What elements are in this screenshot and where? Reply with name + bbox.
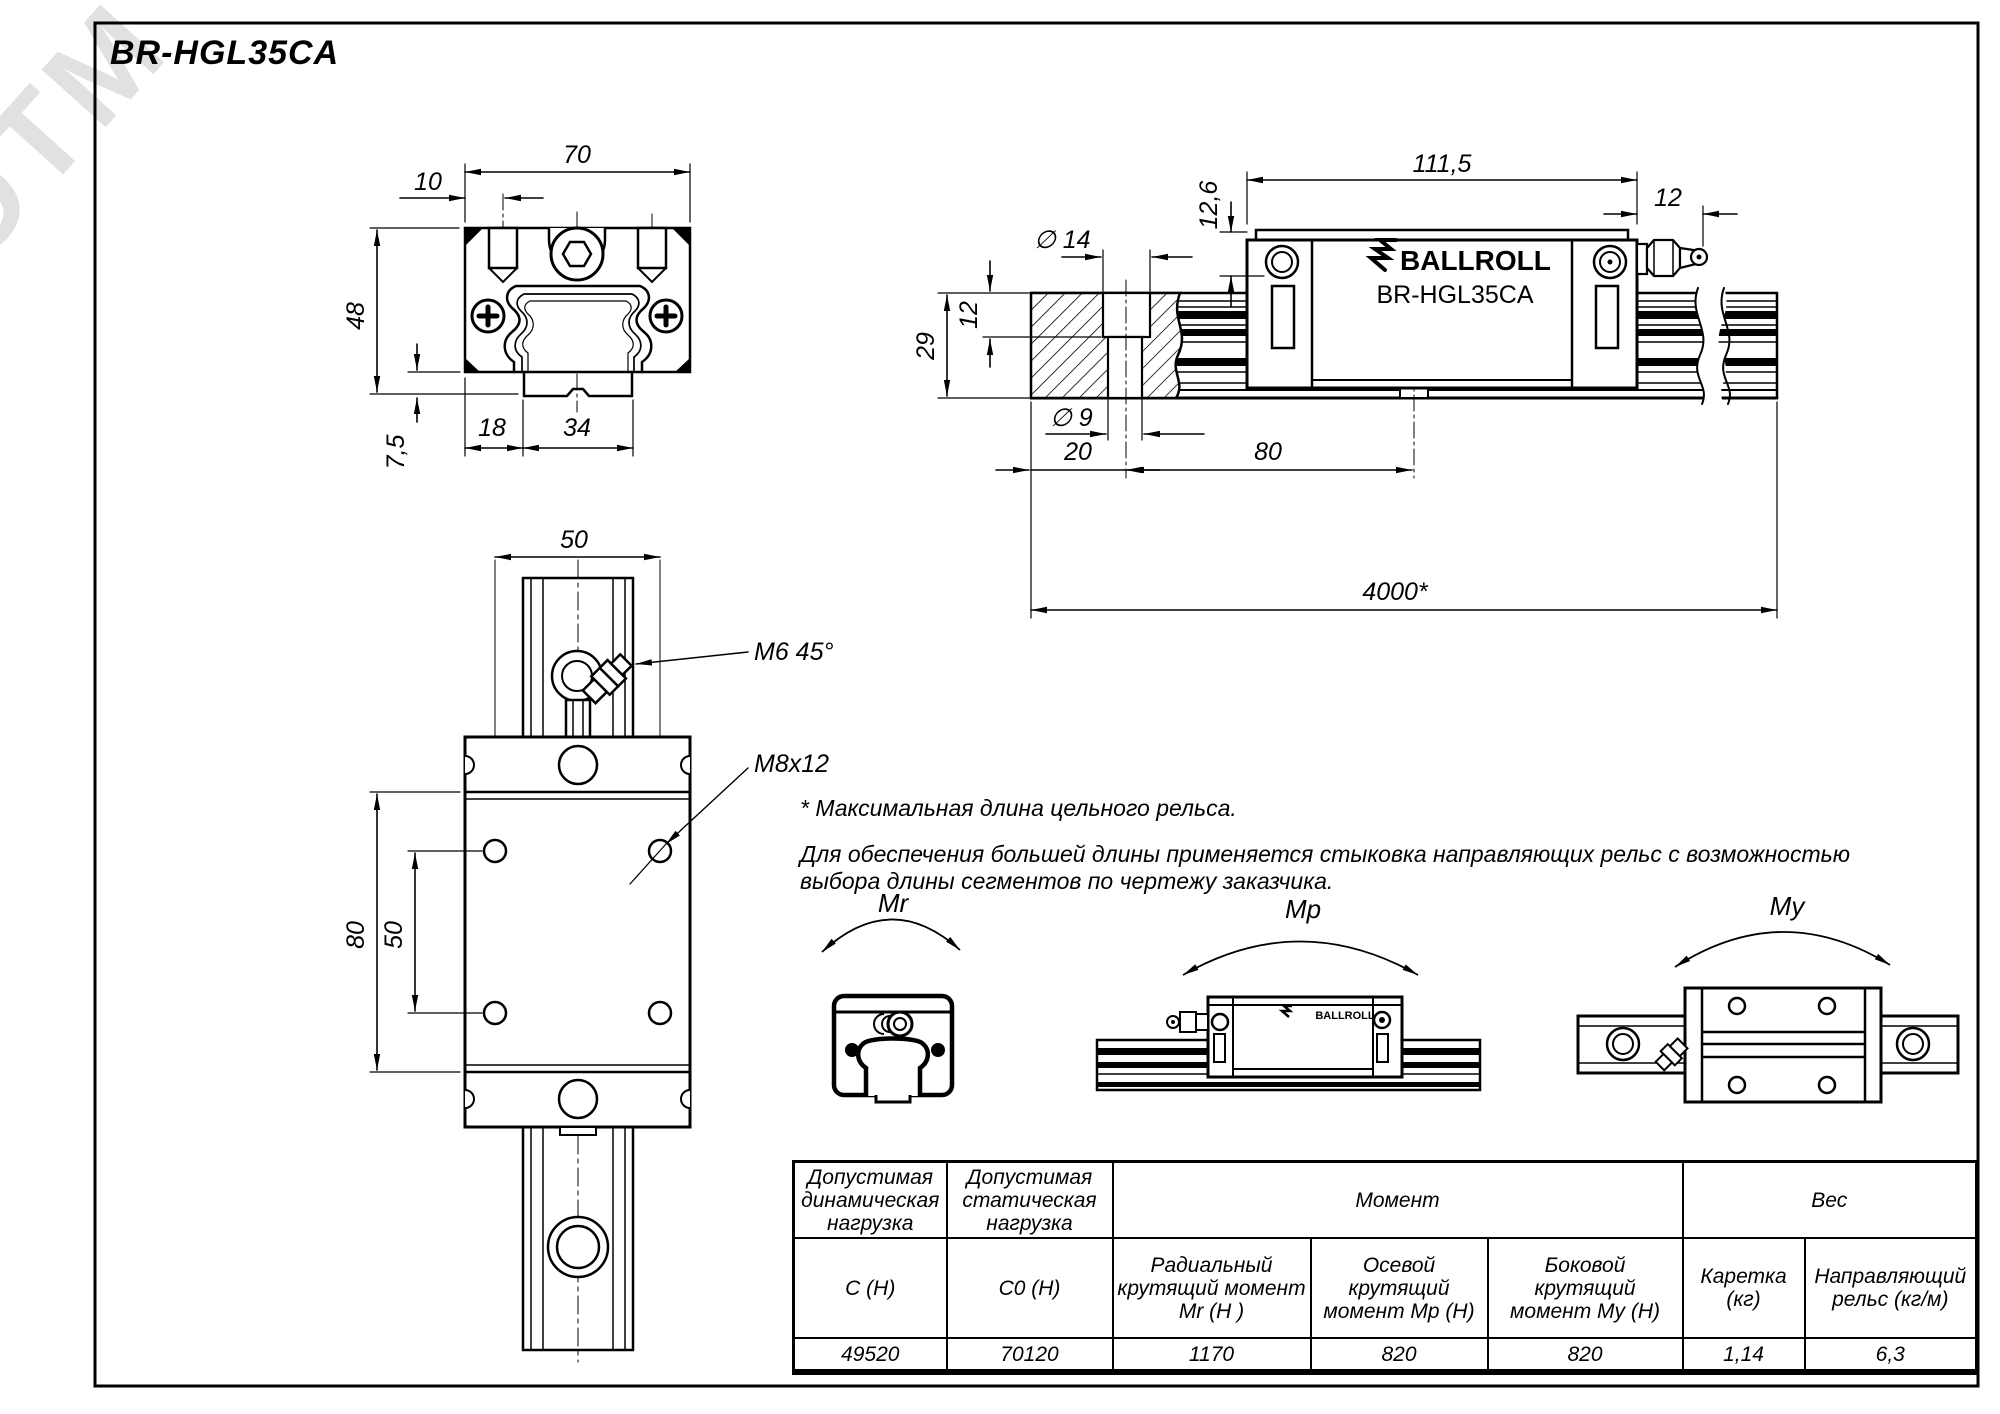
spec-table: Допустимая динамическая нагрузка Допусти… xyxy=(792,1160,1978,1375)
drawing-page: ЭТМ xyxy=(0,0,2000,1414)
th-mp: Осевой крутящий момент Mp (Н) xyxy=(1311,1238,1488,1338)
brand-model-text: BR-HGL35CA xyxy=(1377,281,1534,309)
val-mp: 820 xyxy=(1311,1338,1488,1372)
grease-nipple-icon xyxy=(1637,240,1707,276)
moment-my: My xyxy=(1578,891,1958,1102)
dim-34: 34 xyxy=(563,414,591,442)
th-c: C (Н) xyxy=(794,1238,947,1338)
dim-70: 70 xyxy=(563,141,591,169)
th-my: Боковой крутящий момент My (Н) xyxy=(1488,1238,1683,1338)
dim-48: 48 xyxy=(342,302,370,330)
dim-12-nipple: 12 xyxy=(1654,184,1682,212)
moment-mp: Mp BALLROLL xyxy=(1097,894,1480,1090)
dim-80: 80 xyxy=(1254,438,1282,466)
dim-10: 10 xyxy=(414,168,442,196)
dim-50-width: 50 xyxy=(560,526,588,554)
dim-50-pitch: 50 xyxy=(380,921,408,949)
dim-111-5: 111,5 xyxy=(1413,150,1472,178)
th-c0: C0 (Н) xyxy=(947,1238,1113,1338)
side-view: BALLROLL BR-HGL35CA 111,5 12 xyxy=(912,150,1777,618)
dim-80-length: 80 xyxy=(342,921,370,949)
dim-dia14: ∅ 14 xyxy=(1034,226,1091,254)
mp-icon-logo: BALLROLL xyxy=(1315,1010,1375,1022)
th-carriage: Каретка (кг) xyxy=(1683,1238,1805,1338)
val-c: 49520 xyxy=(794,1338,947,1372)
dim-7-5: 7,5 xyxy=(382,435,410,470)
dim-4000: 4000* xyxy=(1362,578,1429,606)
dim-dia9: ∅ 9 xyxy=(1050,404,1093,432)
notes: * Максимальная длина цельного рельса. Дл… xyxy=(800,795,1930,895)
note-line-3: выбора длины сегментов по чертежу заказч… xyxy=(800,868,1930,895)
note-line-2: Для обеспечения большей длины применяетс… xyxy=(800,841,1930,868)
moment-mr: Mr xyxy=(822,888,960,1102)
callout-m6: M6 45° xyxy=(754,638,833,666)
val-carriage: 1,14 xyxy=(1683,1338,1805,1372)
dim-12-depth: 12 xyxy=(955,301,983,329)
val-my: 820 xyxy=(1488,1338,1683,1372)
note-line-1: * Максимальная длина цельного рельса. xyxy=(800,795,1930,822)
moment-my-label: My xyxy=(1770,891,1807,921)
callout-m8: M8x12 xyxy=(754,750,829,778)
dim-18: 18 xyxy=(478,414,506,442)
front-view: 70 10 48 7,5 18 34 xyxy=(342,141,690,469)
page-title: BR-HGL35CA xyxy=(110,34,339,73)
th-dynamic-load: Допустимая динамическая нагрузка xyxy=(794,1162,947,1239)
th-static-load: Допустимая статическая нагрузка xyxy=(947,1162,1113,1239)
dim-29: 29 xyxy=(912,332,940,361)
val-mr: 1170 xyxy=(1113,1338,1311,1372)
th-weight: Вес xyxy=(1683,1162,1977,1239)
plan-view: 50 80 50 M6 45° M8x12 xyxy=(342,526,833,1362)
dim-20: 20 xyxy=(1063,438,1092,466)
val-c0: 70120 xyxy=(947,1338,1113,1372)
val-rail: 6,3 xyxy=(1805,1338,1977,1372)
th-moment: Момент xyxy=(1113,1162,1683,1239)
dim-12-6: 12,6 xyxy=(1195,181,1223,230)
moment-mp-label: Mp xyxy=(1285,894,1321,924)
brand-logo-text: BALLROLL xyxy=(1400,245,1551,276)
th-mr: Радиальный крутящий момент Mr (Н ) xyxy=(1113,1238,1311,1338)
th-rail: Направляющий рельс (кг/м) xyxy=(1805,1238,1977,1338)
